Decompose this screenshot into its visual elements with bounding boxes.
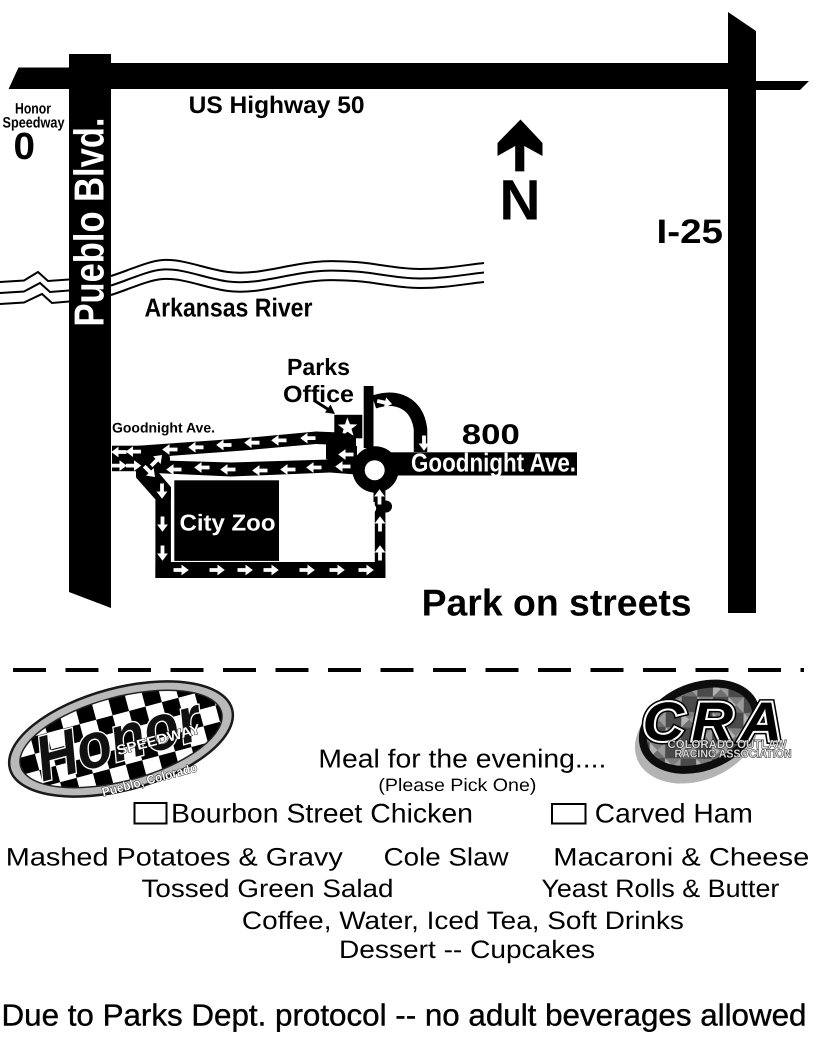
svg-text:Goodnight Ave.: Goodnight Ave.: [112, 420, 215, 436]
svg-text:0: 0: [14, 126, 36, 168]
svg-text:Meal for the evening....: Meal for the evening....: [318, 744, 606, 774]
svg-text:Due to Parks Dept. protocol --: Due to Parks Dept. protocol -- no adult …: [2, 999, 807, 1033]
svg-text:N: N: [499, 169, 540, 233]
svg-text:Yeast Rolls & Butter: Yeast Rolls & Butter: [541, 875, 779, 903]
svg-text:Arkansas River: Arkansas River: [145, 293, 313, 323]
svg-text:Cole Slaw: Cole Slaw: [384, 844, 510, 872]
svg-text:RACING ASSOCIATION: RACING ASSOCIATION: [675, 749, 792, 761]
svg-text:Dessert -- Cupcakes: Dessert -- Cupcakes: [339, 936, 595, 964]
svg-text:Goodnight Ave.: Goodnight Ave.: [411, 448, 576, 478]
svg-text:Coffee, Water, Iced Tea, Soft: Coffee, Water, Iced Tea, Soft Drinks: [242, 907, 684, 935]
svg-text:Carved Ham: Carved Ham: [595, 799, 753, 829]
svg-text:I-25: I-25: [657, 213, 724, 251]
svg-text:Tossed Green Salad: Tossed Green Salad: [142, 875, 394, 903]
svg-text:800: 800: [462, 419, 520, 451]
svg-text:Bourbon Street Chicken: Bourbon Street Chicken: [171, 799, 473, 829]
svg-text:Park on streets: Park on streets: [422, 581, 692, 623]
svg-text:Macaroni & Cheese: Macaroni & Cheese: [553, 844, 809, 872]
svg-text:City Zoo: City Zoo: [180, 509, 276, 535]
svg-text:(Please Pick One): (Please Pick One): [378, 775, 536, 795]
svg-text:Pueblo Blvd.: Pueblo Blvd.: [66, 118, 113, 327]
svg-text:Mashed Potatoes & Gravy: Mashed Potatoes & Gravy: [6, 844, 343, 872]
svg-text:US Highway 50: US Highway 50: [189, 92, 365, 119]
svg-text:Parks: Parks: [287, 354, 350, 380]
